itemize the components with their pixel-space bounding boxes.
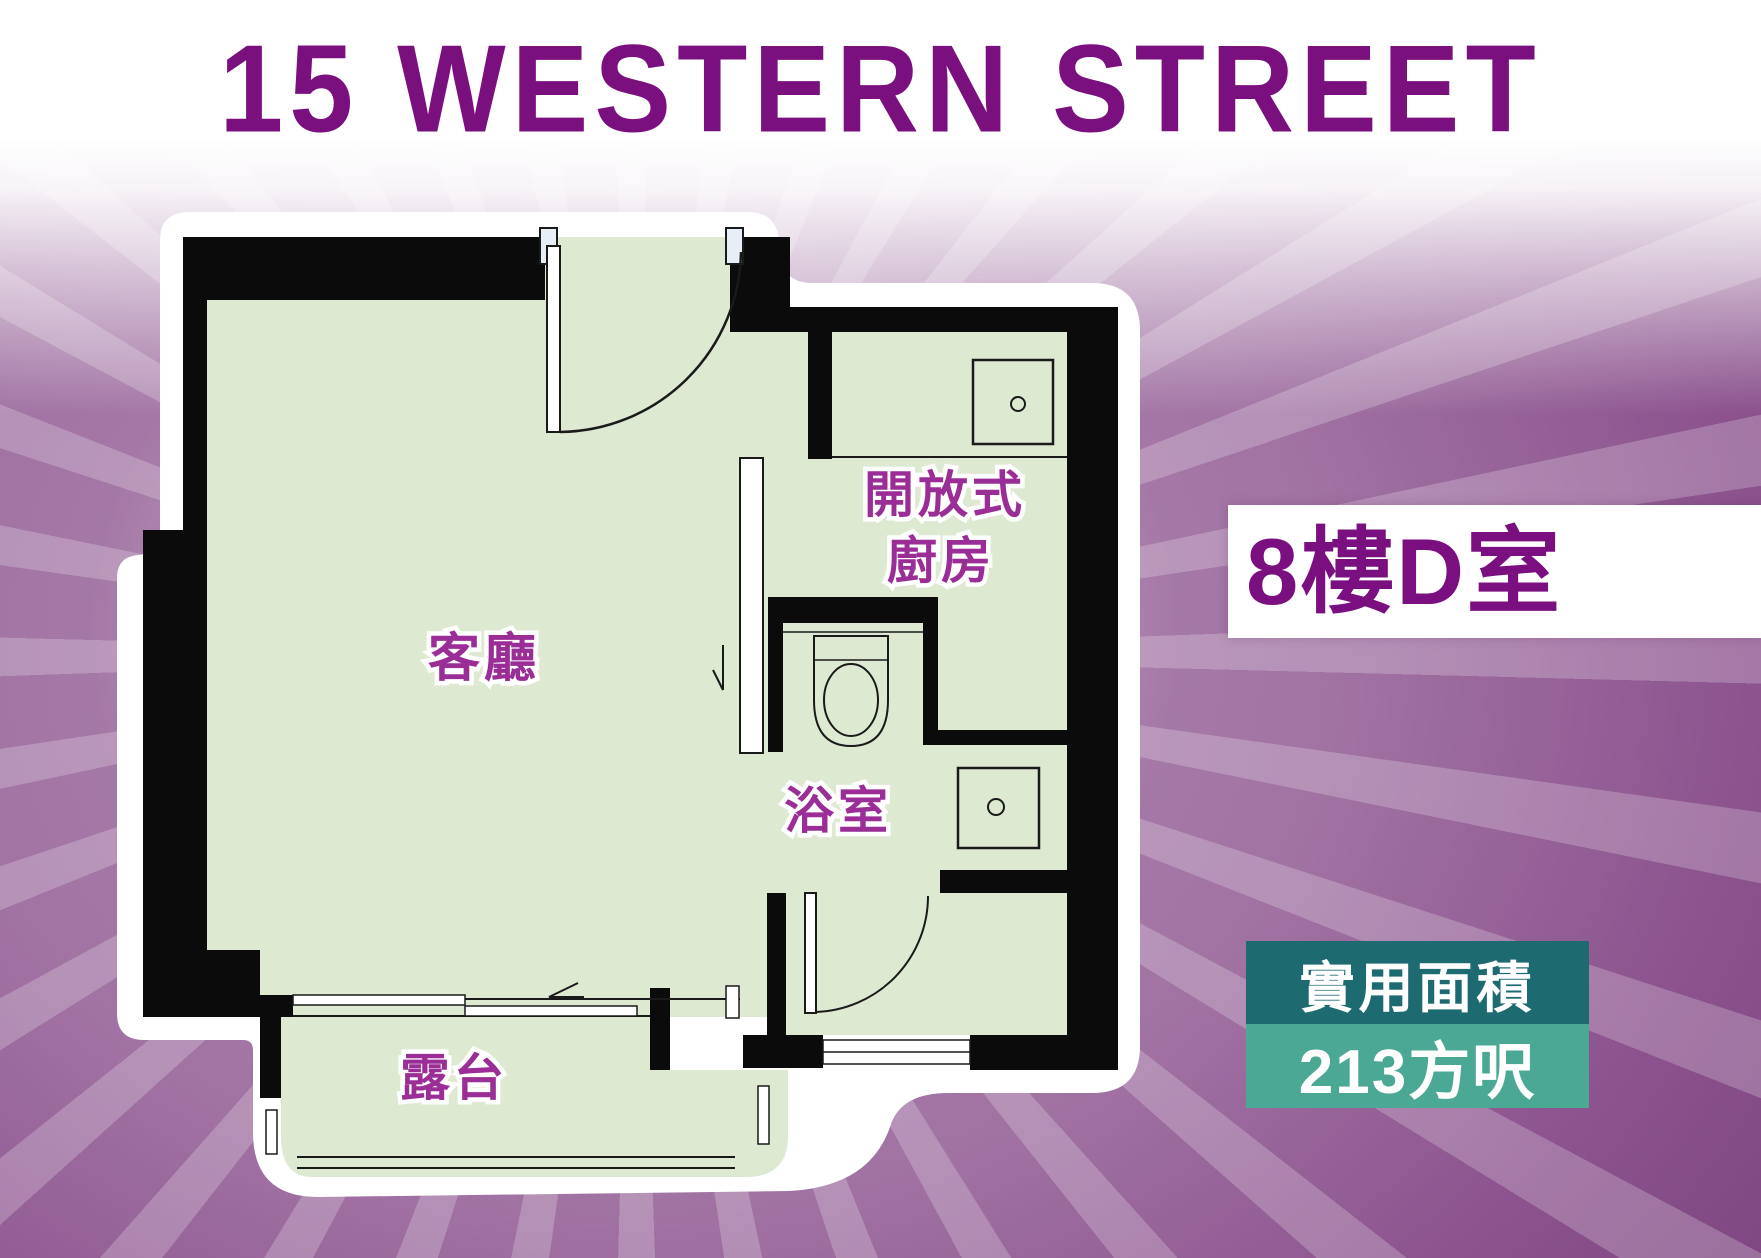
- area-label-badge: 實用面積: [1246, 941, 1589, 1024]
- kitchen-label-line1: 開放式: [864, 467, 1026, 523]
- living-room-label: 客廳: [428, 630, 540, 688]
- kitchen-label-line2: 廚房: [887, 533, 995, 589]
- unit-label: 8樓D室: [1228, 525, 1562, 619]
- area-value: 213方呎: [1299, 1021, 1536, 1111]
- unit-badge: 8樓D室: [1228, 505, 1761, 638]
- bathroom-label: 浴室: [784, 783, 892, 839]
- area-value-badge: 213方呎: [1246, 1024, 1589, 1108]
- sliding-door-panel-1: [293, 995, 465, 1005]
- partition-wall: [740, 458, 763, 753]
- balcony-label: 露台: [400, 1050, 508, 1106]
- sliding-door-panel-2: [465, 1006, 637, 1016]
- entry-door-leaf: [547, 246, 560, 432]
- bathroom-door-leaf: [805, 893, 816, 1013]
- area-label: 實用面積: [1299, 943, 1535, 1023]
